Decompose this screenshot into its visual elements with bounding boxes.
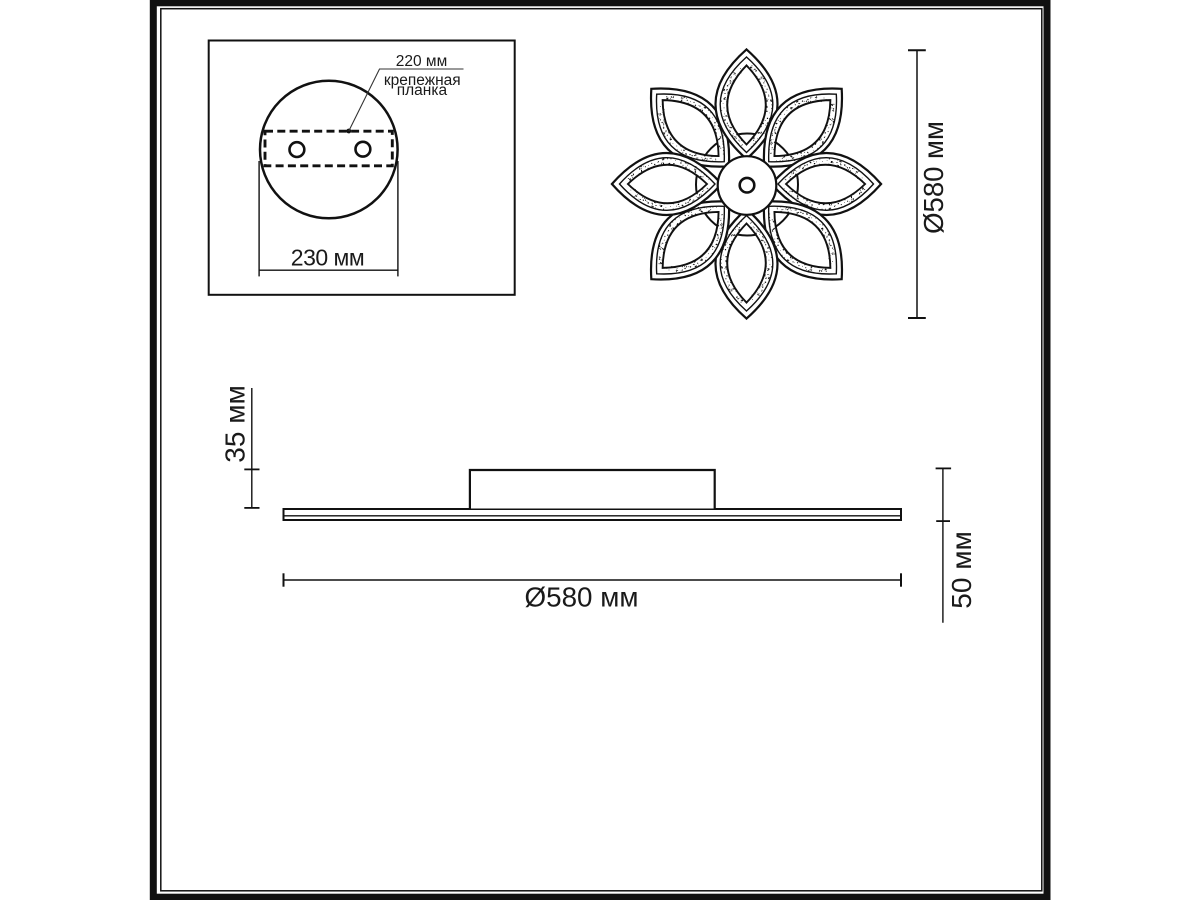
svg-text:220 мм: 220 мм: [396, 53, 447, 70]
svg-text:230 мм: 230 мм: [291, 245, 364, 271]
svg-text:35 мм: 35 мм: [219, 385, 250, 462]
svg-text:50 мм: 50 мм: [946, 531, 977, 608]
svg-text:Ø580 мм: Ø580 мм: [918, 121, 949, 234]
svg-text:Ø580 мм: Ø580 мм: [525, 582, 639, 613]
svg-text:планка: планка: [397, 82, 448, 99]
